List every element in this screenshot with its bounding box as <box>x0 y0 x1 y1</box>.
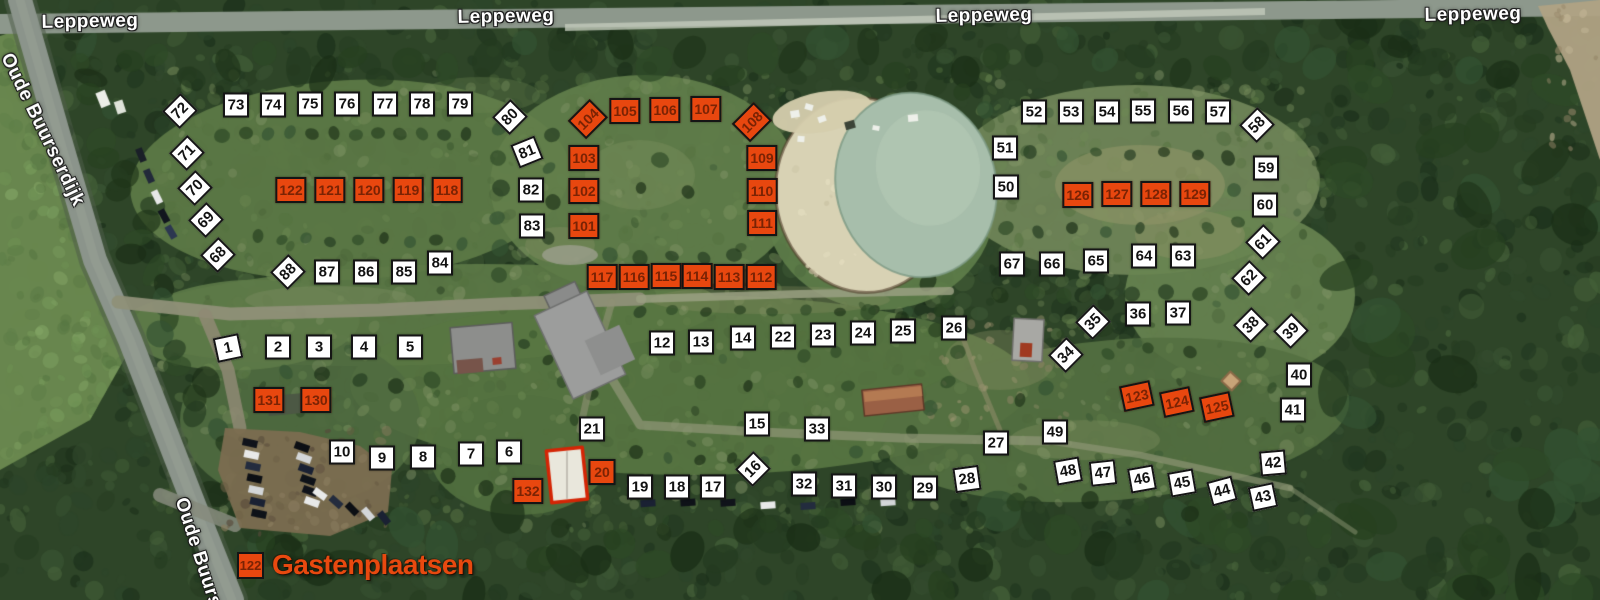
plot-marker-14: 14 <box>730 326 756 351</box>
plot-marker-27: 27 <box>983 431 1009 456</box>
plot-marker-22: 22 <box>770 325 796 350</box>
leppeweg-label-4: Leppeweg <box>1424 3 1521 27</box>
plot-marker-42: 42 <box>1259 449 1287 476</box>
plot-marker-29: 29 <box>912 476 938 501</box>
legend-label: Gastenplaatsen <box>272 549 474 581</box>
plot-marker-28: 28 <box>952 465 981 493</box>
plot-marker-41: 41 <box>1280 398 1306 423</box>
plot-marker-47: 47 <box>1089 459 1117 487</box>
plot-marker-50: 50 <box>993 175 1019 200</box>
guest-plot-marker-115: 115 <box>651 263 682 289</box>
plot-marker-31: 31 <box>831 474 857 499</box>
plot-marker-40: 40 <box>1286 363 1312 388</box>
plot-marker-4: 4 <box>351 335 377 360</box>
guest-plot-marker-110: 110 <box>747 178 778 204</box>
guest-plot-marker-20: 20 <box>589 459 616 485</box>
plot-marker-21: 21 <box>579 417 605 442</box>
plot-marker-43: 43 <box>1248 482 1279 512</box>
plot-marker-65: 65 <box>1083 249 1109 274</box>
plot-marker-83: 83 <box>519 214 545 239</box>
plot-marker-75: 75 <box>297 92 323 117</box>
guest-plot-marker-109: 109 <box>746 145 777 171</box>
plot-marker-76: 76 <box>334 92 360 117</box>
guest-plot-marker-116: 116 <box>619 264 650 290</box>
guest-plot-marker-117: 117 <box>587 264 618 290</box>
guest-plot-marker-101: 101 <box>568 213 599 239</box>
plot-marker-19: 19 <box>627 475 653 500</box>
leppeweg-label-2: Leppeweg <box>457 5 554 29</box>
guest-plot-marker-105: 105 <box>609 98 640 124</box>
leppeweg-label-1: Leppeweg <box>41 10 138 34</box>
guest-plot-marker-132: 132 <box>512 478 543 504</box>
plot-marker-8: 8 <box>410 445 436 470</box>
plot-marker-48: 48 <box>1053 456 1083 485</box>
plot-marker-32: 32 <box>791 472 817 497</box>
guest-plot-marker-128: 128 <box>1140 181 1171 207</box>
legend-guest-swatch: 122 <box>237 552 264 579</box>
plot-marker-25: 25 <box>890 319 916 344</box>
plot-marker-56: 56 <box>1168 99 1194 124</box>
plot-marker-67: 67 <box>999 252 1025 277</box>
plot-marker-51: 51 <box>992 136 1018 161</box>
guest-plot-marker-112: 112 <box>746 264 777 290</box>
plot-marker-59: 59 <box>1253 156 1279 181</box>
plot-marker-36: 36 <box>1125 302 1151 327</box>
plot-marker-55: 55 <box>1130 99 1156 124</box>
guest-plot-marker-131: 131 <box>253 387 284 413</box>
plot-marker-53: 53 <box>1058 100 1084 125</box>
guest-plot-marker-119: 119 <box>393 177 424 203</box>
guest-plot-marker-127: 127 <box>1101 181 1132 207</box>
plot-marker-15: 15 <box>744 412 770 437</box>
guest-plot-marker-113: 113 <box>714 264 745 290</box>
plot-marker-6: 6 <box>496 440 522 465</box>
plot-marker-60: 60 <box>1252 193 1278 218</box>
plot-marker-23: 23 <box>810 323 836 348</box>
plot-marker-12: 12 <box>649 331 675 356</box>
leppeweg-label-3: Leppeweg <box>935 4 1032 28</box>
guest-plot-marker-121: 121 <box>314 177 345 203</box>
guest-plot-marker-106: 106 <box>649 97 680 123</box>
plot-marker-46: 46 <box>1127 464 1157 493</box>
plot-marker-73: 73 <box>223 93 249 118</box>
plot-marker-3: 3 <box>306 335 332 360</box>
plot-marker-82: 82 <box>518 178 544 203</box>
guest-plot-marker-107: 107 <box>690 96 721 122</box>
plot-marker-64: 64 <box>1131 244 1157 269</box>
plot-marker-17: 17 <box>700 475 726 500</box>
satellite-imagery <box>0 0 1600 600</box>
guest-plot-marker-126: 126 <box>1062 182 1093 208</box>
guest-plot-marker-129: 129 <box>1179 181 1210 207</box>
guest-plot-marker-120: 120 <box>353 177 384 203</box>
guest-plot-marker-111: 111 <box>747 210 777 236</box>
campsite-map: 1234567891012131415161718192122232425262… <box>0 0 1600 600</box>
plot-marker-7: 7 <box>458 442 484 467</box>
guest-plot-marker-114: 114 <box>682 263 713 289</box>
plot-marker-13: 13 <box>688 330 714 355</box>
plot-marker-87: 87 <box>314 260 340 285</box>
plot-marker-54: 54 <box>1094 100 1120 125</box>
plot-marker-1: 1 <box>213 333 244 363</box>
plot-marker-45: 45 <box>1167 468 1197 497</box>
plot-marker-52: 52 <box>1021 100 1047 125</box>
plot-marker-86: 86 <box>353 260 379 285</box>
plot-marker-18: 18 <box>664 475 690 500</box>
plot-marker-37: 37 <box>1165 301 1191 326</box>
plot-marker-79: 79 <box>447 92 473 117</box>
guest-plot-marker-122: 122 <box>275 177 306 203</box>
plot-marker-10: 10 <box>329 440 355 465</box>
guest-plot-marker-103: 103 <box>568 145 599 171</box>
plot-marker-24: 24 <box>850 321 876 346</box>
plot-marker-2: 2 <box>265 335 291 360</box>
guest-plot-marker-102: 102 <box>568 178 599 204</box>
plot-marker-5: 5 <box>397 335 423 360</box>
plot-marker-85: 85 <box>391 260 417 285</box>
plot-marker-9: 9 <box>369 446 395 471</box>
plot-marker-30: 30 <box>871 475 897 500</box>
plot-marker-78: 78 <box>409 92 435 117</box>
plot-marker-57: 57 <box>1205 100 1231 125</box>
plot-marker-33: 33 <box>804 417 830 442</box>
guest-plot-marker-130: 130 <box>300 387 331 413</box>
plot-marker-74: 74 <box>260 93 286 118</box>
plot-marker-63: 63 <box>1170 244 1196 269</box>
plot-marker-84: 84 <box>427 251 453 276</box>
guest-plot-marker-118: 118 <box>432 177 463 203</box>
plot-marker-49: 49 <box>1042 420 1068 445</box>
plot-marker-77: 77 <box>372 92 398 117</box>
plot-marker-26: 26 <box>941 316 967 341</box>
plot-marker-66: 66 <box>1039 252 1065 277</box>
